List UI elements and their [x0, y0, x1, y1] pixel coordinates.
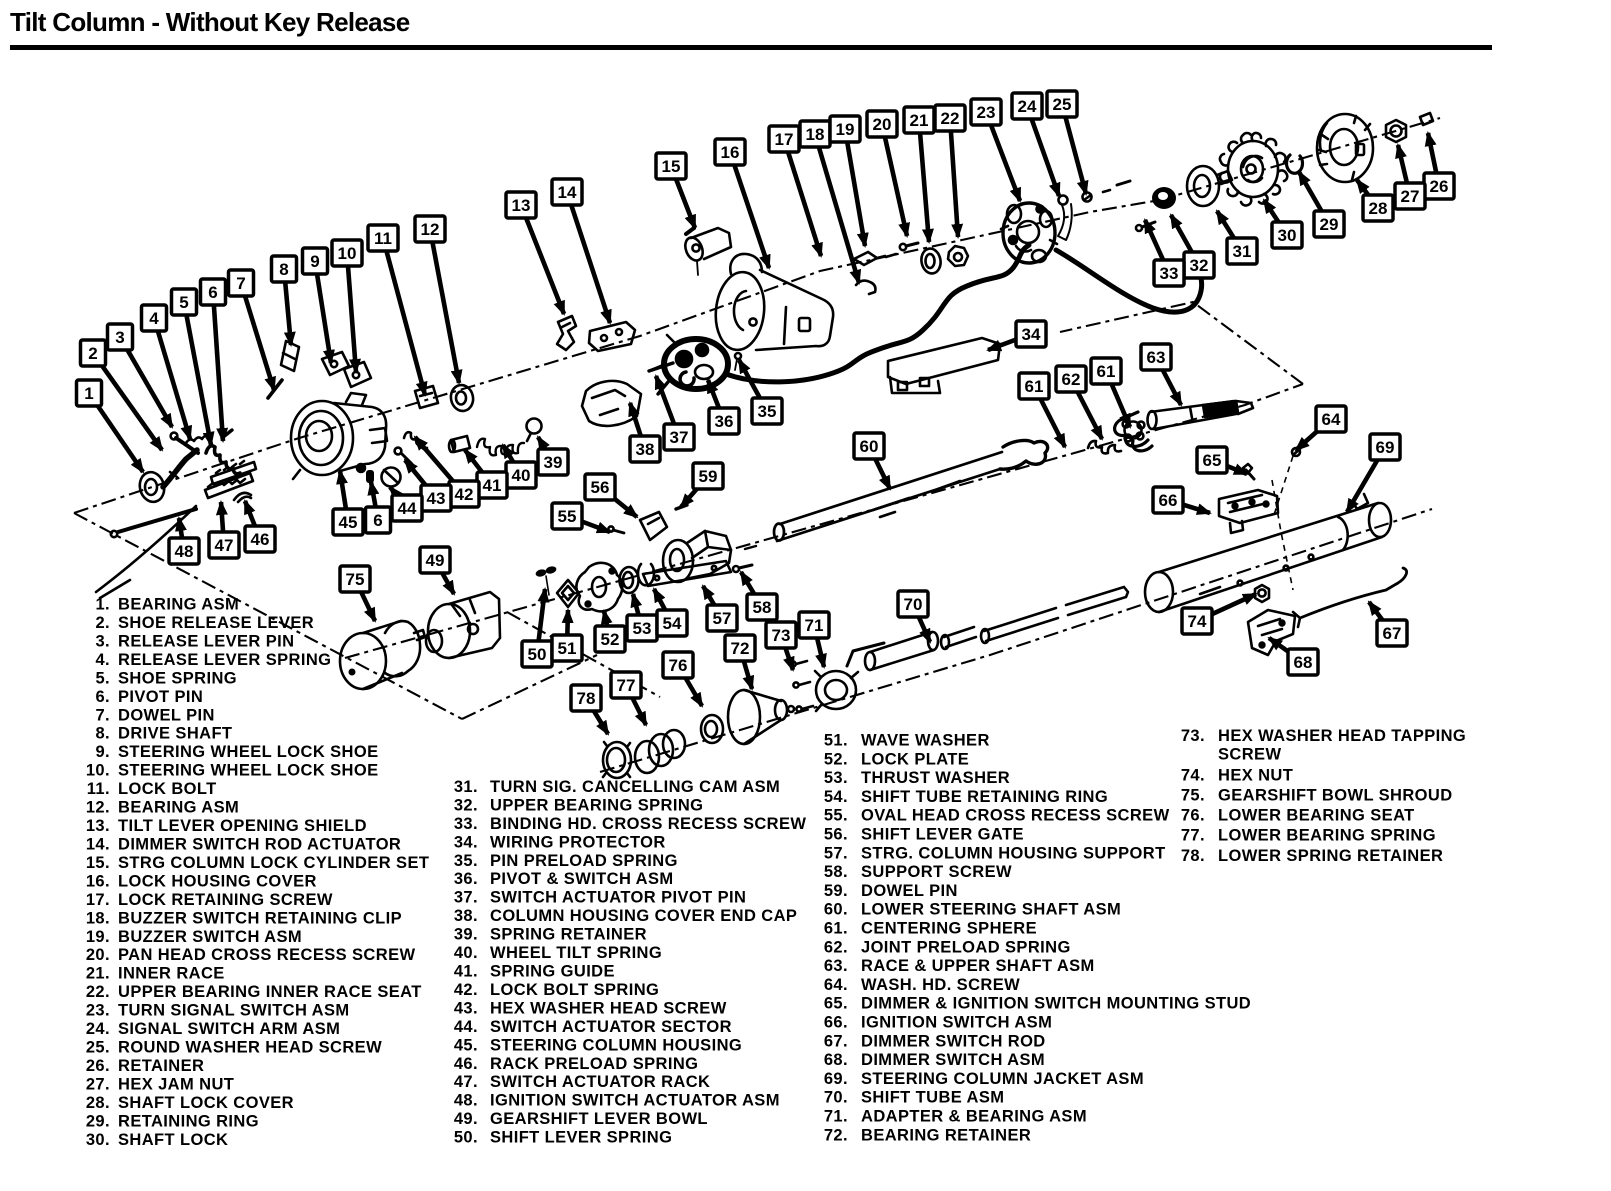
svg-text:36: 36 — [715, 412, 734, 431]
svg-text:SWITCH ACTUATOR SECTOR: SWITCH ACTUATOR SECTOR — [490, 1018, 732, 1036]
svg-text:JOINT PRELOAD SPRING: JOINT PRELOAD SPRING — [861, 938, 1071, 956]
svg-text:4: 4 — [149, 309, 159, 328]
svg-text:69: 69 — [1376, 438, 1395, 457]
svg-text:34.: 34. — [454, 833, 478, 851]
svg-text:41.: 41. — [454, 963, 478, 981]
svg-text:23: 23 — [977, 103, 996, 122]
svg-text:63.: 63. — [824, 957, 848, 975]
svg-text:61: 61 — [1097, 362, 1116, 381]
svg-text:14: 14 — [558, 183, 577, 202]
svg-text:27.: 27. — [86, 1076, 110, 1094]
svg-text:48.: 48. — [454, 1092, 478, 1110]
svg-text:60: 60 — [860, 437, 879, 456]
svg-text:TILT LEVER OPENING SHIELD: TILT LEVER OPENING SHIELD — [118, 817, 367, 835]
svg-text:72.: 72. — [824, 1126, 848, 1144]
svg-text:1.: 1. — [95, 596, 110, 614]
svg-text:3.: 3. — [95, 632, 110, 650]
svg-text:SCREW: SCREW — [1218, 746, 1281, 764]
svg-text:RELEASE LEVER PIN: RELEASE LEVER PIN — [118, 632, 294, 650]
svg-text:75: 75 — [346, 570, 365, 589]
svg-text:BEARING ASM: BEARING ASM — [118, 596, 239, 614]
svg-text:10.: 10. — [86, 762, 110, 780]
svg-text:HEX WASHER HEAD SCREW: HEX WASHER HEAD SCREW — [490, 999, 727, 1017]
svg-text:8.: 8. — [95, 725, 110, 743]
svg-text:21.: 21. — [86, 965, 110, 983]
svg-text:DOWEL PIN: DOWEL PIN — [861, 882, 958, 900]
svg-text:STEERING COLUMN JACKET ASM: STEERING COLUMN JACKET ASM — [861, 1070, 1144, 1088]
svg-text:24.: 24. — [86, 1020, 110, 1038]
svg-text:STEERING COLUMN HOUSING: STEERING COLUMN HOUSING — [490, 1036, 742, 1054]
svg-text:16: 16 — [721, 143, 740, 162]
svg-text:UPPER BEARING INNER RACE SEAT: UPPER BEARING INNER RACE SEAT — [118, 983, 422, 1001]
svg-text:12.: 12. — [86, 799, 110, 817]
svg-text:28: 28 — [1369, 199, 1388, 218]
svg-text:33.: 33. — [454, 815, 478, 833]
svg-text:25.: 25. — [86, 1039, 110, 1057]
svg-text:19: 19 — [836, 120, 855, 139]
svg-text:SPRING RETAINER: SPRING RETAINER — [490, 926, 647, 944]
svg-text:59.: 59. — [824, 882, 848, 900]
svg-text:36.: 36. — [454, 870, 478, 888]
svg-text:60.: 60. — [824, 901, 848, 919]
svg-text:ADAPTER & BEARING ASM: ADAPTER & BEARING ASM — [861, 1108, 1087, 1126]
svg-text:18: 18 — [806, 125, 825, 144]
svg-text:5.: 5. — [95, 669, 110, 687]
svg-text:10: 10 — [338, 244, 357, 263]
svg-text:43: 43 — [427, 489, 446, 508]
svg-text:22: 22 — [941, 109, 960, 128]
svg-text:46: 46 — [251, 530, 270, 549]
svg-text:39.: 39. — [454, 926, 478, 944]
svg-text:61: 61 — [1025, 377, 1044, 396]
svg-text:70.: 70. — [824, 1089, 848, 1107]
svg-text:78: 78 — [577, 689, 596, 708]
svg-text:15: 15 — [662, 157, 681, 176]
svg-text:51.: 51. — [824, 732, 848, 750]
svg-text:DIMMER SWITCH ASM: DIMMER SWITCH ASM — [861, 1051, 1045, 1069]
svg-text:5: 5 — [179, 293, 188, 312]
svg-text:51: 51 — [558, 639, 577, 658]
svg-text:DRIVE SHAFT: DRIVE SHAFT — [118, 725, 232, 743]
svg-text:55: 55 — [558, 507, 577, 526]
svg-text:TURN SIGNAL SWITCH ASM: TURN SIGNAL SWITCH ASM — [118, 1002, 350, 1020]
svg-text:73: 73 — [772, 626, 791, 645]
svg-text:55.: 55. — [824, 807, 848, 825]
svg-text:SHIFT LEVER GATE: SHIFT LEVER GATE — [861, 826, 1024, 844]
svg-text:69.: 69. — [824, 1070, 848, 1088]
svg-text:72: 72 — [731, 639, 750, 658]
svg-text:DIMMER SWITCH ROD: DIMMER SWITCH ROD — [861, 1032, 1046, 1050]
svg-text:63: 63 — [1147, 348, 1166, 367]
svg-text:78.: 78. — [1181, 847, 1205, 865]
svg-text:42: 42 — [455, 485, 474, 504]
svg-text:31: 31 — [1233, 242, 1252, 261]
svg-text:59: 59 — [699, 467, 718, 486]
svg-text:68.: 68. — [824, 1051, 848, 1069]
svg-text:27: 27 — [1401, 187, 1420, 206]
svg-text:50: 50 — [528, 645, 547, 664]
svg-text:37.: 37. — [454, 889, 478, 907]
svg-text:41: 41 — [483, 476, 502, 495]
svg-text:WIRING PROTECTOR: WIRING PROTECTOR — [490, 833, 666, 851]
svg-text:COLUMN HOUSING COVER END CAP: COLUMN HOUSING COVER END CAP — [490, 907, 797, 925]
svg-text:SHAFT LOCK: SHAFT LOCK — [118, 1131, 228, 1149]
svg-text:DIMMER & IGNITION SWITCH MOUNT: DIMMER & IGNITION SWITCH MOUNTING STUD — [861, 995, 1251, 1013]
svg-text:WHEEL TILT SPRING: WHEEL TILT SPRING — [490, 944, 662, 962]
svg-text:24: 24 — [1018, 97, 1037, 116]
svg-text:18.: 18. — [86, 909, 110, 927]
svg-text:SHOE SPRING: SHOE SPRING — [118, 669, 237, 687]
svg-text:BUZZER SWITCH ASM: BUZZER SWITCH ASM — [118, 928, 302, 946]
svg-text:75.: 75. — [1181, 787, 1205, 805]
svg-text:20: 20 — [873, 115, 892, 134]
svg-text:20.: 20. — [86, 946, 110, 964]
svg-text:52.: 52. — [824, 750, 848, 768]
svg-text:77.: 77. — [1181, 827, 1205, 845]
svg-text:GEARSHIFT BOWL SHROUD: GEARSHIFT BOWL SHROUD — [1218, 787, 1453, 805]
svg-text:SHIFT TUBE ASM: SHIFT TUBE ASM — [861, 1089, 1004, 1107]
svg-text:BEARING RETAINER: BEARING RETAINER — [861, 1126, 1031, 1144]
svg-text:61.: 61. — [824, 920, 848, 938]
svg-text:23.: 23. — [86, 1002, 110, 1020]
svg-text:IGNITION SWITCH ASM: IGNITION SWITCH ASM — [861, 1014, 1052, 1032]
svg-text:THRUST WASHER: THRUST WASHER — [861, 769, 1010, 787]
svg-text:DOWEL PIN: DOWEL PIN — [118, 706, 215, 724]
svg-text:LOWER BEARING SEAT: LOWER BEARING SEAT — [1218, 807, 1415, 825]
svg-text:45.: 45. — [454, 1036, 478, 1054]
svg-text:52: 52 — [601, 630, 620, 649]
svg-text:7.: 7. — [95, 706, 110, 724]
svg-text:66.: 66. — [824, 1014, 848, 1032]
svg-text:STEERING WHEEL LOCK SHOE: STEERING WHEEL LOCK SHOE — [118, 762, 378, 780]
svg-text:54.: 54. — [824, 788, 848, 806]
svg-text:SHOE RELEASE LEVER: SHOE RELEASE LEVER — [118, 614, 314, 632]
svg-text:33: 33 — [1160, 264, 1179, 283]
svg-text:49.: 49. — [454, 1110, 478, 1128]
svg-text:BUZZER SWITCH RETAINING CLIP: BUZZER SWITCH RETAINING CLIP — [118, 909, 402, 927]
svg-text:PAN HEAD CROSS RECESS SCREW: PAN HEAD CROSS RECESS SCREW — [118, 946, 415, 964]
svg-text:6.: 6. — [95, 688, 110, 706]
svg-text:31.: 31. — [454, 778, 478, 796]
svg-text:2: 2 — [88, 344, 97, 363]
svg-text:62.: 62. — [824, 938, 848, 956]
svg-text:SHIFT TUBE RETAINING RING: SHIFT TUBE RETAINING RING — [861, 788, 1108, 806]
svg-text:HEX WASHER HEAD TAPPING: HEX WASHER HEAD TAPPING — [1218, 727, 1466, 745]
svg-text:57: 57 — [713, 609, 732, 628]
svg-text:GEARSHIFT LEVER BOWL: GEARSHIFT LEVER BOWL — [490, 1110, 708, 1128]
svg-text:LOWER STEERING SHAFT ASM: LOWER STEERING SHAFT ASM — [861, 901, 1121, 919]
svg-text:42.: 42. — [454, 981, 478, 999]
svg-text:58.: 58. — [824, 863, 848, 881]
svg-text:11.: 11. — [87, 780, 110, 798]
svg-text:66: 66 — [1159, 491, 1178, 510]
svg-text:SUPPORT SCREW: SUPPORT SCREW — [861, 863, 1012, 881]
svg-text:11: 11 — [374, 229, 392, 248]
svg-text:50.: 50. — [454, 1129, 478, 1147]
svg-text:LOCK HOUSING COVER: LOCK HOUSING COVER — [118, 872, 317, 890]
svg-text:28.: 28. — [86, 1094, 110, 1112]
svg-text:62: 62 — [1062, 370, 1081, 389]
svg-text:LOCK PLATE: LOCK PLATE — [861, 750, 969, 768]
svg-text:47: 47 — [215, 536, 234, 555]
svg-text:16.: 16. — [86, 872, 110, 890]
svg-text:39: 39 — [544, 453, 563, 472]
svg-text:76.: 76. — [1181, 807, 1205, 825]
svg-text:58: 58 — [753, 598, 772, 617]
svg-text:40.: 40. — [454, 944, 478, 962]
svg-text:SIGNAL SWITCH ARM ASM: SIGNAL SWITCH ARM ASM — [118, 1020, 340, 1038]
svg-text:BINDING HD. CROSS RECESS SCREW: BINDING HD. CROSS RECESS SCREW — [490, 815, 806, 833]
svg-text:35: 35 — [758, 402, 777, 421]
svg-text:1: 1 — [84, 384, 93, 403]
svg-text:SWITCH ACTUATOR RACK: SWITCH ACTUATOR RACK — [490, 1073, 710, 1091]
svg-text:32.: 32. — [454, 797, 478, 815]
svg-text:45: 45 — [339, 513, 358, 532]
svg-text:77: 77 — [617, 676, 636, 695]
svg-text:74.: 74. — [1181, 767, 1205, 785]
svg-text:65: 65 — [1203, 451, 1222, 470]
svg-text:2.: 2. — [95, 614, 110, 632]
svg-text:IGNITION SWITCH ACTUATOR ASM: IGNITION SWITCH ACTUATOR ASM — [490, 1092, 780, 1110]
svg-text:37: 37 — [670, 428, 689, 447]
svg-text:64.: 64. — [824, 976, 848, 994]
svg-text:34: 34 — [1022, 325, 1041, 344]
svg-text:73.: 73. — [1181, 727, 1205, 745]
svg-text:RACK PRELOAD SPRING: RACK PRELOAD SPRING — [490, 1055, 698, 1073]
svg-text:44: 44 — [398, 499, 417, 518]
svg-text:13: 13 — [512, 196, 531, 215]
svg-text:STEERING WHEEL LOCK SHOE: STEERING WHEEL LOCK SHOE — [118, 743, 378, 761]
svg-text:67.: 67. — [824, 1032, 848, 1050]
svg-text:14.: 14. — [86, 836, 110, 854]
svg-text:PIN PRELOAD SPRING: PIN PRELOAD SPRING — [490, 852, 678, 870]
svg-text:56.: 56. — [824, 826, 848, 844]
svg-text:44.: 44. — [454, 1018, 478, 1036]
svg-text:19.: 19. — [86, 928, 110, 946]
svg-text:68: 68 — [1294, 653, 1313, 672]
svg-text:46.: 46. — [454, 1055, 478, 1073]
svg-text:SPRING GUIDE: SPRING GUIDE — [490, 963, 615, 981]
svg-text:RETAINING RING: RETAINING RING — [118, 1112, 259, 1130]
svg-text:29.: 29. — [86, 1112, 110, 1130]
svg-text:21: 21 — [910, 111, 929, 130]
svg-text:57.: 57. — [824, 844, 848, 862]
svg-text:53: 53 — [633, 619, 652, 638]
svg-text:WAVE WASHER: WAVE WASHER — [861, 732, 990, 750]
svg-text:HEX NUT: HEX NUT — [1218, 767, 1293, 785]
svg-text:43.: 43. — [454, 999, 478, 1017]
svg-text:UPPER BEARING SPRING: UPPER BEARING SPRING — [490, 797, 703, 815]
svg-text:7: 7 — [236, 274, 245, 293]
svg-text:BEARING ASM: BEARING ASM — [118, 799, 239, 817]
svg-text:LOCK BOLT SPRING: LOCK BOLT SPRING — [490, 981, 659, 999]
svg-text:35.: 35. — [454, 852, 478, 870]
svg-text:LOWER SPRING RETAINER: LOWER SPRING RETAINER — [1218, 847, 1443, 865]
svg-text:13.: 13. — [86, 817, 110, 835]
svg-text:LOCK RETAINING SCREW: LOCK RETAINING SCREW — [118, 891, 333, 909]
svg-text:29: 29 — [1320, 215, 1339, 234]
svg-text:70: 70 — [904, 595, 923, 614]
svg-text:3: 3 — [115, 328, 124, 347]
svg-text:STRG. COLUMN HOUSING SUPPORT: STRG. COLUMN HOUSING SUPPORT — [861, 844, 1166, 862]
svg-text:22.: 22. — [86, 983, 110, 1001]
svg-text:9: 9 — [310, 252, 319, 271]
svg-text:48: 48 — [175, 542, 194, 561]
svg-text:DIMMER SWITCH ROD ACTUATOR: DIMMER SWITCH ROD ACTUATOR — [118, 836, 401, 854]
svg-text:4.: 4. — [95, 651, 110, 669]
svg-text:6: 6 — [373, 511, 382, 530]
svg-text:RETAINER: RETAINER — [118, 1057, 204, 1075]
svg-text:76: 76 — [669, 656, 688, 675]
svg-text:8: 8 — [279, 260, 288, 279]
svg-text:49: 49 — [426, 551, 445, 570]
svg-text:INNER RACE: INNER RACE — [118, 965, 225, 983]
svg-text:30.: 30. — [86, 1131, 110, 1149]
svg-text:SHIFT LEVER SPRING: SHIFT LEVER SPRING — [490, 1129, 672, 1147]
svg-text:PIVOT PIN: PIVOT PIN — [118, 688, 203, 706]
svg-text:17: 17 — [775, 130, 794, 149]
svg-text:32: 32 — [1190, 256, 1209, 275]
svg-text:64: 64 — [1322, 410, 1341, 429]
svg-text:38: 38 — [636, 440, 655, 459]
svg-text:47.: 47. — [454, 1073, 478, 1091]
svg-text:CENTERING SPHERE: CENTERING SPHERE — [861, 920, 1037, 938]
svg-text:53.: 53. — [824, 769, 848, 787]
svg-text:Tilt Column - Without Key Rele: Tilt Column - Without Key Release — [10, 7, 410, 37]
svg-text:LOCK BOLT: LOCK BOLT — [118, 780, 217, 798]
svg-text:STRG COLUMN LOCK CYLINDER SET: STRG COLUMN LOCK CYLINDER SET — [118, 854, 429, 872]
svg-text:71.: 71. — [824, 1108, 848, 1126]
svg-text:25: 25 — [1053, 95, 1072, 114]
svg-text:26.: 26. — [86, 1057, 110, 1075]
svg-text:30: 30 — [1278, 226, 1297, 245]
svg-text:ROUND WASHER HEAD SCREW: ROUND WASHER HEAD SCREW — [118, 1039, 382, 1057]
svg-text:WASH. HD. SCREW: WASH. HD. SCREW — [861, 976, 1020, 994]
svg-text:OVAL HEAD CROSS RECESS SCREW: OVAL HEAD CROSS RECESS SCREW — [861, 807, 1170, 825]
svg-text:15.: 15. — [86, 854, 110, 872]
svg-text:71: 71 — [805, 616, 824, 635]
svg-text:54: 54 — [663, 614, 682, 633]
svg-text:TURN SIG. CANCELLING CAM ASM: TURN SIG. CANCELLING CAM ASM — [490, 778, 780, 796]
svg-text:RACE & UPPER SHAFT ASM: RACE & UPPER SHAFT ASM — [861, 957, 1095, 975]
svg-text:17.: 17. — [86, 891, 110, 909]
svg-text:LOWER BEARING SPRING: LOWER BEARING SPRING — [1218, 827, 1436, 845]
svg-text:26: 26 — [1430, 177, 1449, 196]
svg-text:12: 12 — [421, 220, 440, 239]
svg-text:SHAFT LOCK COVER: SHAFT LOCK COVER — [118, 1094, 294, 1112]
svg-text:HEX JAM NUT: HEX JAM NUT — [118, 1076, 234, 1094]
svg-text:74: 74 — [1188, 612, 1207, 631]
svg-text:6: 6 — [208, 283, 217, 302]
svg-text:RELEASE LEVER SPRING: RELEASE LEVER SPRING — [118, 651, 331, 669]
svg-text:SWITCH ACTUATOR PIVOT PIN: SWITCH ACTUATOR PIVOT PIN — [490, 889, 746, 907]
svg-text:67: 67 — [1383, 624, 1402, 643]
svg-text:PIVOT & SWITCH ASM: PIVOT & SWITCH ASM — [490, 870, 674, 888]
svg-text:38.: 38. — [454, 907, 478, 925]
svg-text:9.: 9. — [95, 743, 110, 761]
svg-text:56: 56 — [591, 478, 610, 497]
svg-text:40: 40 — [512, 466, 531, 485]
svg-text:65.: 65. — [824, 995, 848, 1013]
